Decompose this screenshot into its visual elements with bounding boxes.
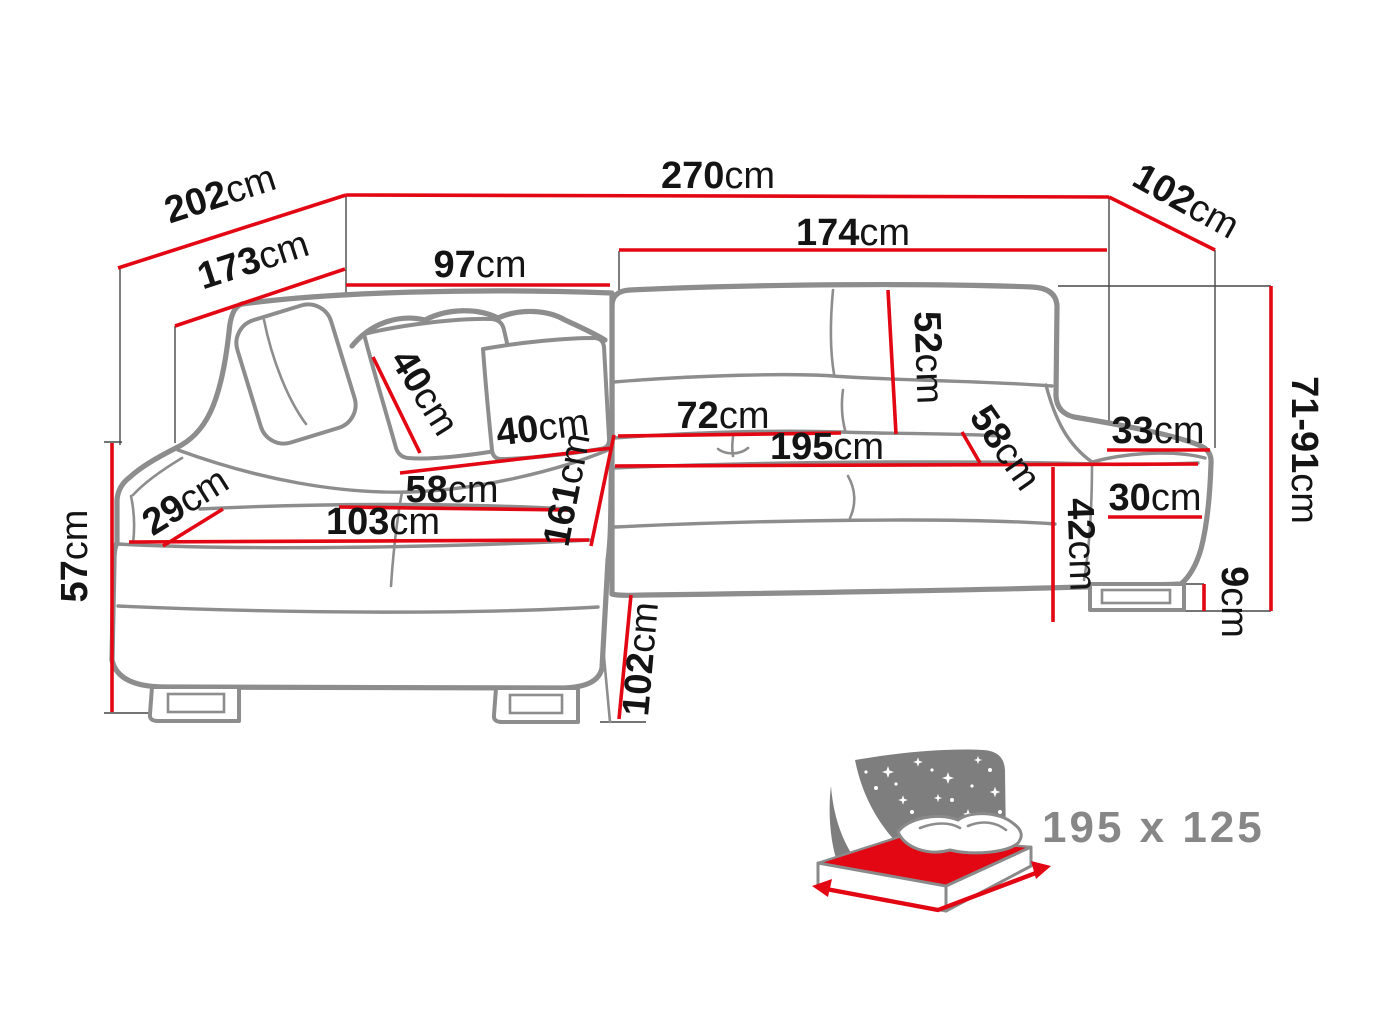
star-dot: [988, 768, 992, 772]
dim-label-102-bottom: 102cm: [615, 600, 667, 717]
dim-label-30: 30cm: [1109, 477, 1202, 519]
tufting-mark: [732, 437, 733, 456]
star-dot: [998, 810, 1002, 814]
dim-label-270: 270cm: [661, 155, 775, 197]
star-dot: [930, 768, 933, 771]
dim-label-52: 52cm: [905, 310, 950, 404]
dim-line-195: [615, 464, 1198, 466]
star-dot: [950, 798, 954, 802]
dim-label-72: 72cm: [677, 395, 770, 437]
star-icon: [835, 791, 842, 798]
star-dot: [894, 782, 897, 785]
star-dot: [864, 770, 867, 773]
dim-label-42: 42cm: [1058, 497, 1103, 591]
dim-label-71-91: 71-91cm: [1283, 376, 1325, 524]
dim-label-9: 9cm: [1213, 566, 1255, 638]
sofa-dimension-diagram: 202cm 270cm 102cm 173cm 97cm 174cm 52cm …: [0, 0, 1375, 1031]
arrowhead-right-icon: [1031, 861, 1051, 879]
diagram-canvas: 202cm 270cm 102cm 173cm 97cm 174cm 52cm …: [0, 0, 1375, 1031]
star-dot: [842, 829, 845, 832]
dim-label-97: 97cm: [434, 244, 527, 286]
bed-pillows: [898, 814, 1021, 853]
dim-label-174: 174cm: [796, 212, 910, 254]
star-dot: [837, 811, 840, 814]
sleeping-area-size: 195 x 125: [1042, 803, 1265, 852]
dim-label-57: 57cm: [54, 510, 96, 603]
sofa-leg-front-right: [494, 688, 578, 722]
star-dot: [970, 784, 973, 787]
dim-label-195: 195cm: [770, 426, 884, 468]
star-dot: [874, 786, 878, 790]
star-dot: [910, 810, 914, 814]
dim-label-103: 103cm: [326, 501, 440, 543]
sofa-leg-front-left: [150, 687, 239, 721]
curtain-panel: [830, 786, 853, 858]
sleeping-area-icon: 195 x 125: [812, 749, 1265, 911]
dim-label-33: 33cm: [1112, 410, 1205, 452]
